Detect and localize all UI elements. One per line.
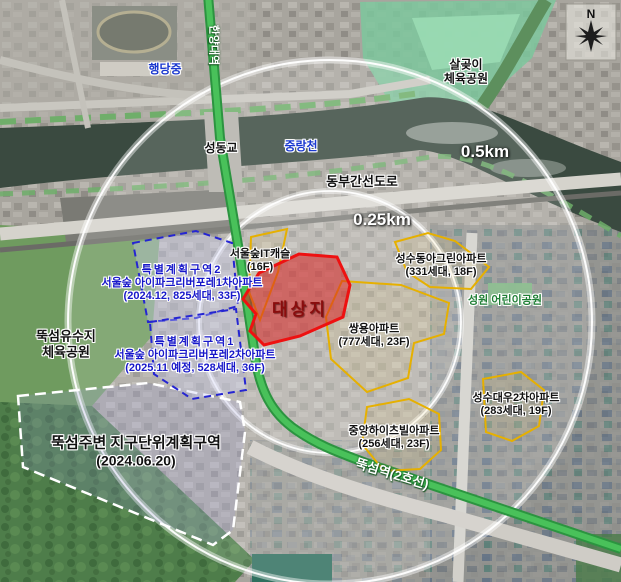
label-salgoji-park: 살곶이 체육공원 [444,58,488,87]
label-hanyang-univ-station: 한양대역 [206,25,219,65]
label-hangdang-school: 행당중 [148,62,181,76]
label-special-district-1: 특별계획구역1 서울숲 아이파크리버포레2차아파트 (2025.11 예정, 5… [115,336,276,376]
label-donga-green-apt: 성수동아그린아파트 (331세대, 18F) [395,253,486,279]
label-seongwon-park: 성원 어린이공원 [468,294,542,307]
label-jungnang-stream: 중랑천 [284,139,317,153]
label-radius-250m: 0.25km [353,210,411,230]
compass-north-label: N [587,7,596,21]
label-radius-500m: 0.5km [461,142,509,162]
label-ssangyong-apt: 쌍용아파트 (777세대, 23F) [339,323,410,349]
label-target-site: 대상지 [272,300,328,320]
label-ttukseom-district: 뚝섬주변 지구단위계획구역 (2024.06.20) [51,435,221,470]
label-yusuji-park: 뚝섬유수지 체육공원 [36,328,96,359]
label-jungang-heights-apt: 중앙하이츠빌아파트 (256세대, 23F) [348,425,439,451]
label-daewoo2-apt: 성수대우2차아파트 (283세대, 19F) [472,392,559,418]
label-it-castle: 서울숲IT캐슬 (16F) [230,248,290,274]
map-base-layer [0,0,621,582]
label-dongbu-expressway: 동부간선도로 [326,174,398,190]
label-seongdong-bridge: 성동교 [204,141,237,155]
site-analysis-map[interactable]: 행당중 한양대역 성동교 중랑천 살곶이 체육공원 동부간선도로 0.5km 0… [0,0,621,582]
